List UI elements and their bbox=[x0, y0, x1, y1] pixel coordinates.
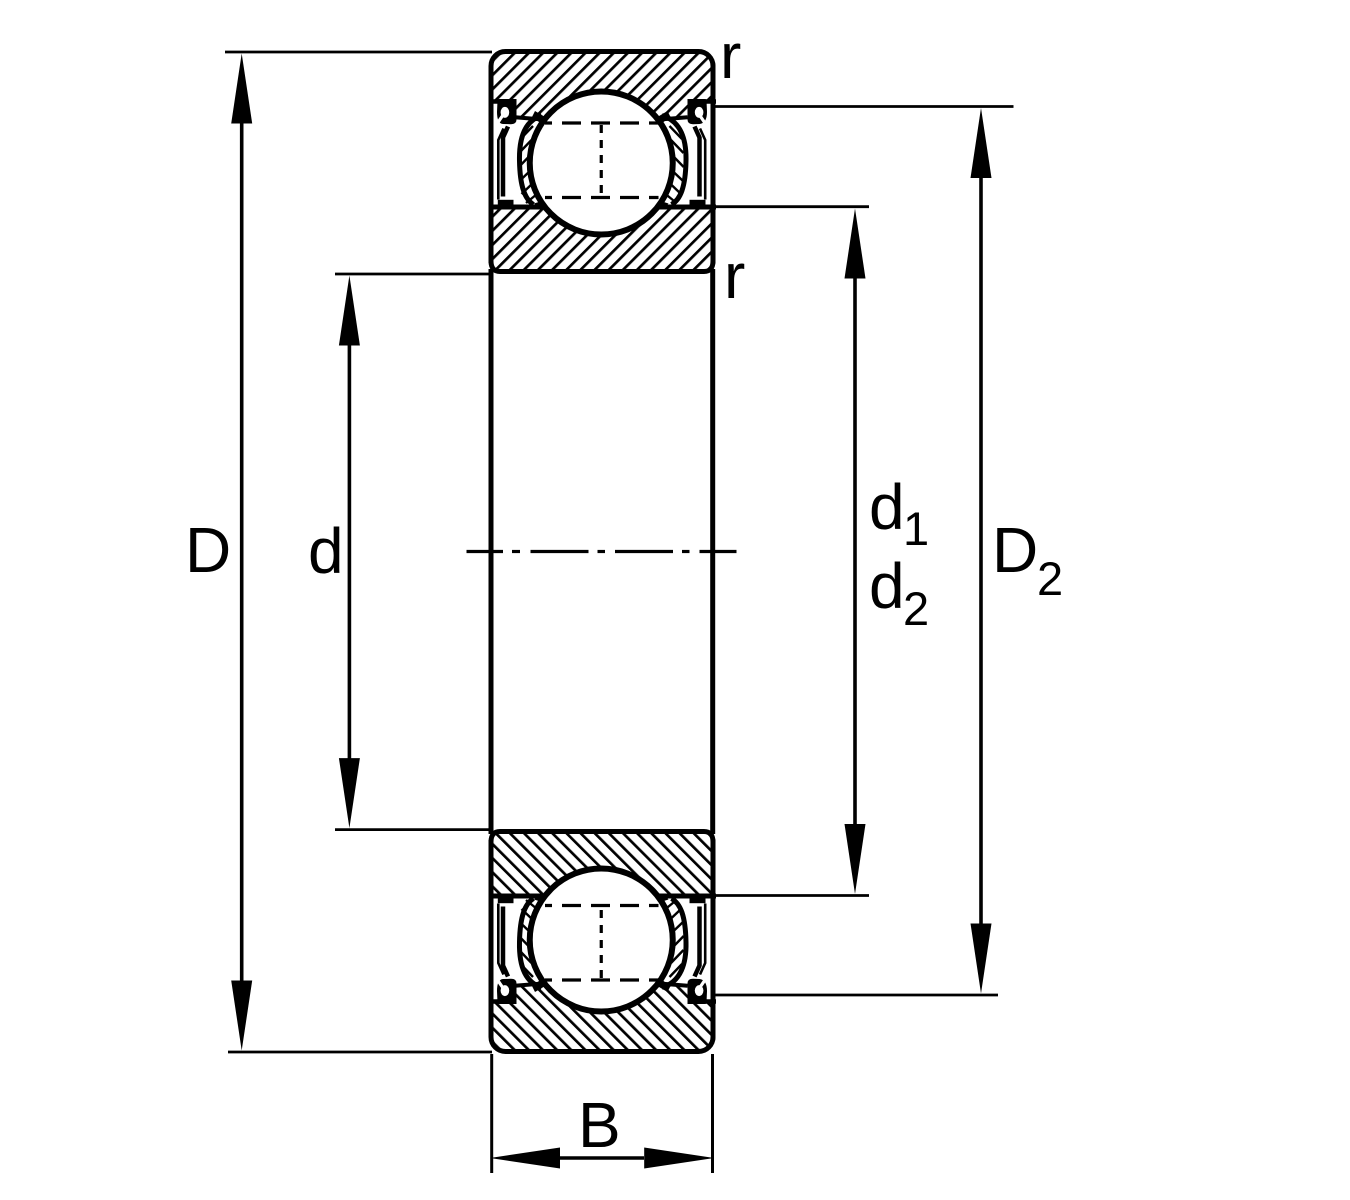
svg-text:2: 2 bbox=[1037, 552, 1063, 605]
svg-text:1: 1 bbox=[903, 502, 929, 555]
svg-text:r: r bbox=[724, 240, 745, 312]
svg-text:B: B bbox=[578, 1089, 621, 1161]
svg-text:D: D bbox=[185, 514, 231, 586]
svg-text:D: D bbox=[992, 514, 1038, 586]
svg-text:r: r bbox=[720, 20, 741, 92]
svg-text:d: d bbox=[308, 515, 344, 587]
svg-text:2: 2 bbox=[903, 582, 929, 635]
svg-text:d: d bbox=[869, 471, 905, 543]
svg-text:d: d bbox=[869, 550, 905, 622]
